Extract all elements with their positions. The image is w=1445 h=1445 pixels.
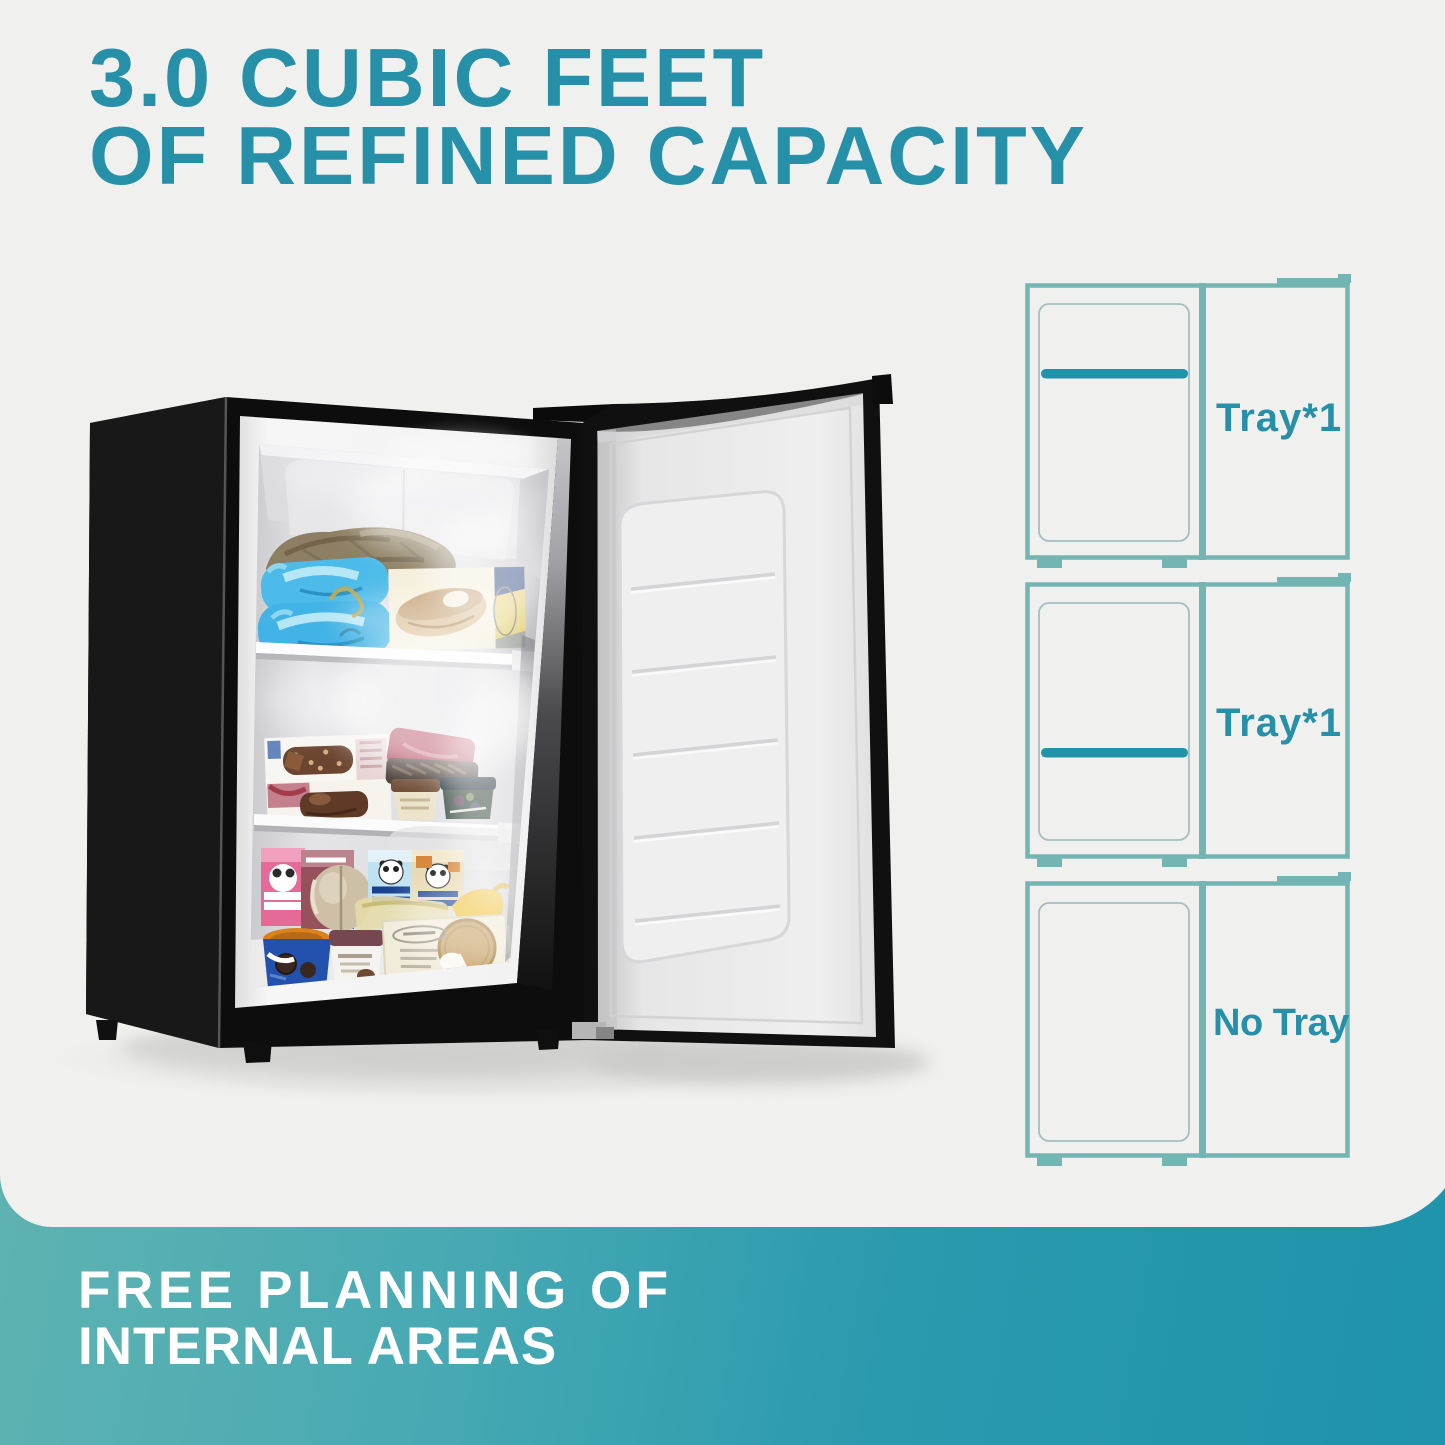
svg-text:Tray*1: Tray*1 bbox=[1216, 701, 1342, 745]
svg-text:Tray*1: Tray*1 bbox=[1216, 396, 1342, 440]
svg-text:No Tray: No Tray bbox=[1213, 1002, 1349, 1044]
